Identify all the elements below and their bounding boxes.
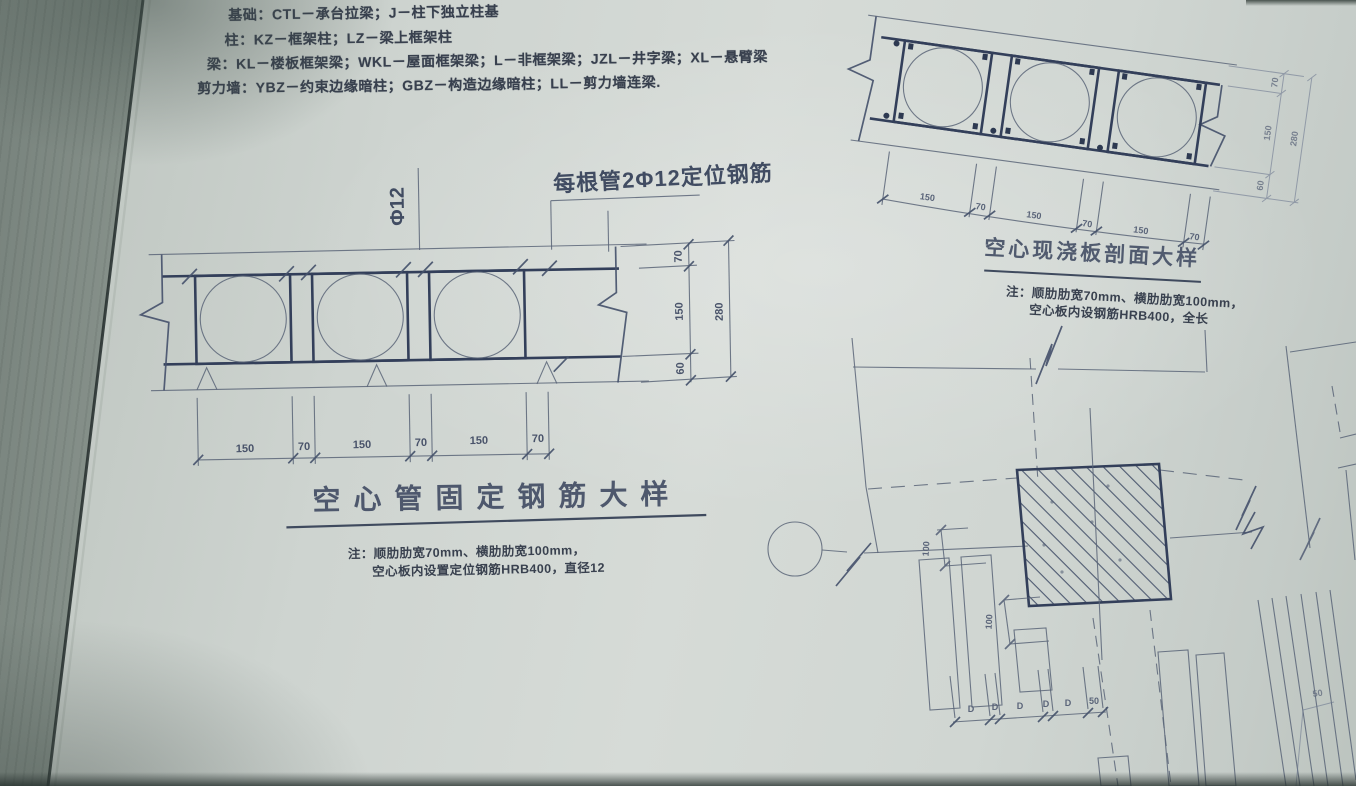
paper-background	[0, 0, 1356, 786]
photo-structural-drawing-page: 基础：CTL－承台拉梁；J－柱下独立柱基 柱：KZ－框架柱；LZ－梁上框架柱 梁…	[0, 0, 1356, 786]
legend-line-foundation: 基础：CTL－承台拉梁；J－柱下独立柱基	[228, 1, 499, 25]
legend-line-column: 柱：KZ－框架柱；LZ－梁上框架柱	[224, 27, 452, 50]
